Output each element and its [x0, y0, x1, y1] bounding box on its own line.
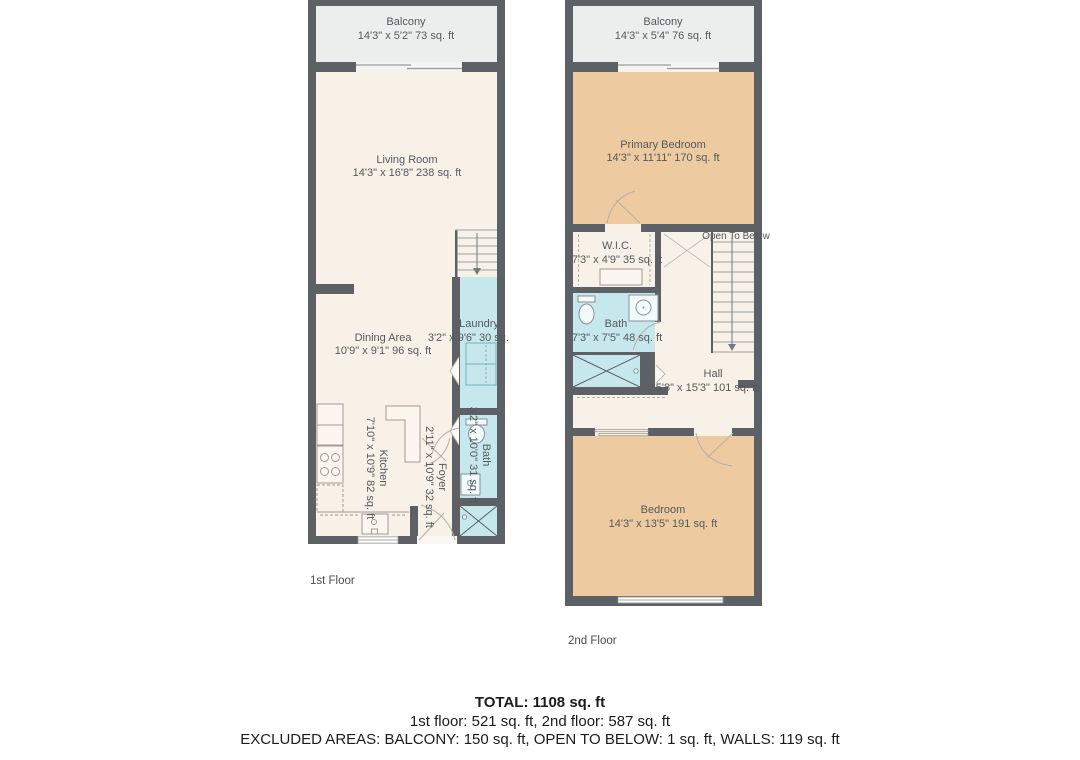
wic-dresser: [600, 269, 642, 285]
bedroom-dims: 14'3" x 13'5" 191 sq. ft: [609, 518, 718, 530]
hall-label: Hall: [704, 368, 723, 380]
foyer-dims: 2'11" x 10'9" 32 sq. ft: [423, 426, 435, 528]
floor-plan-page: Balcony 14'3" x 5'2" 73 sq. ft Living Ro…: [0, 0, 1080, 760]
area-summary: TOTAL: 1108 sq. ft 1st floor: 521 sq. ft…: [0, 694, 1080, 750]
balcony-label: Balcony: [386, 16, 426, 28]
bedroom-window: [618, 597, 723, 603]
kitchen-label: Kitchen: [377, 450, 389, 487]
hall-dims: 5'8" x 15'3" 101 sq. ft: [656, 382, 759, 394]
wic-label: W.I.C.: [602, 240, 632, 252]
summary-excluded-line: EXCLUDED AREAS: BALCONY: 150 sq. ft, OPE…: [0, 731, 1080, 750]
balcony-sliding-door: [356, 63, 462, 72]
summary-floors-line: 1st floor: 521 sq. ft, 2nd floor: 587 sq…: [0, 713, 1080, 732]
kitchen-dims: 7'10" x 10'9" 82 sq. ft: [364, 417, 376, 520]
first-floor-svg: Balcony 14'3" x 5'2" 73 sq. ft Living Ro…: [300, 0, 512, 552]
dining-area-dims: 10'9" x 9'1" 96 sq. ft: [335, 345, 431, 357]
second-floor-caption: 2nd Floor: [568, 635, 617, 647]
toilet2-tank: [578, 296, 595, 302]
first-floor-plan: Balcony 14'3" x 5'2" 73 sq. ft Living Ro…: [300, 0, 512, 557]
bedroom-label: Bedroom: [641, 504, 686, 516]
bath-dims: 3'2" x 10'0" 31 sq. ft: [467, 407, 479, 503]
primary-bedroom-label: Primary Bedroom: [620, 139, 706, 151]
balcony-dims: 14'3" x 5'2" 73 sq. ft: [358, 30, 454, 42]
laundry-dims: 3'2" x 9'6" 30 sq. ft: [428, 332, 512, 344]
second-floor-svg: Balcony 14'3" x 5'4" 76 sq. ft Primary B…: [558, 0, 780, 615]
open-to-below-label: Open To Below: [702, 231, 770, 242]
balcony2-label: Balcony: [643, 16, 683, 28]
stove: [317, 446, 343, 483]
balcony-sliding-door-2: [618, 63, 719, 72]
bath-label: Bath: [480, 444, 492, 467]
living-room-label: Living Room: [376, 154, 437, 166]
summary-total: TOTAL: 1108 sq. ft: [0, 694, 1080, 713]
kitchen-window: [358, 537, 398, 543]
bath2-dims: 7'3" x 7'5" 48 sq. ft: [572, 332, 662, 344]
second-floor-plan: Balcony 14'3" x 5'4" 76 sq. ft Primary B…: [558, 0, 780, 620]
living-room-dims: 14'3" x 16'8" 238 sq. ft: [353, 167, 462, 179]
bath2-label: Bath: [605, 318, 628, 330]
bedroom-floor: [573, 436, 754, 596]
balcony2-dims: 14'3" x 5'4" 76 sq. ft: [615, 30, 711, 42]
dining-area-label: Dining Area: [355, 332, 413, 344]
foyer-label: Foyer: [436, 463, 448, 491]
first-floor-caption: 1st Floor: [310, 575, 355, 587]
toilet2-bowl: [579, 304, 594, 324]
laundry-label: Laundry: [459, 318, 499, 330]
entry-door-gap: [417, 536, 457, 544]
primary-bedroom-dims: 14'3" x 11'11" 170 sq. ft: [606, 152, 719, 164]
wic-dims: 7'3" x 4'9" 35 sq. ft: [572, 254, 662, 266]
